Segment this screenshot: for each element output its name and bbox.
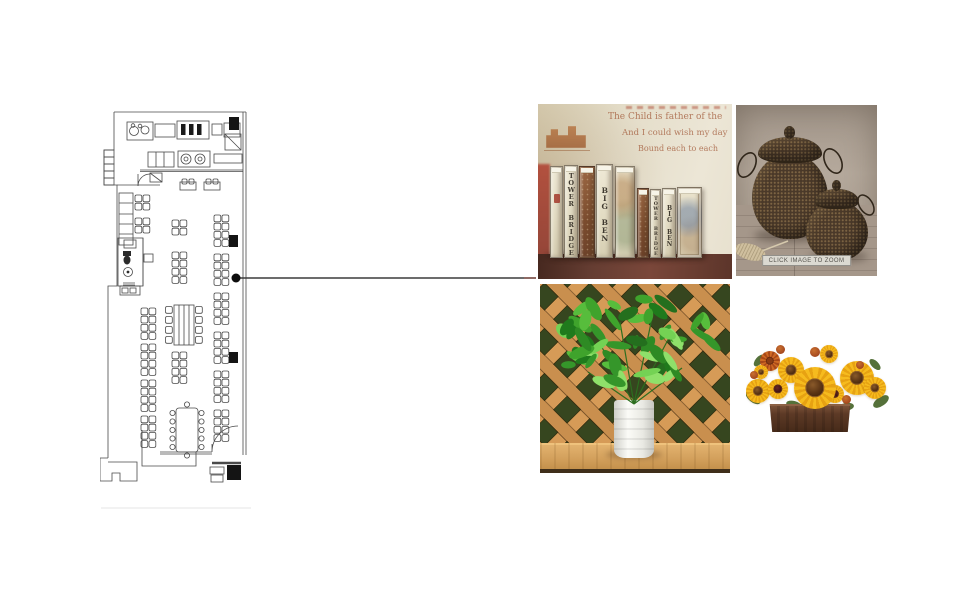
sunflower-head [864, 377, 886, 399]
book-spine-label: BIG BEN [601, 186, 609, 242]
zoom-caption[interactable]: CLICK IMAGE TO ZOOM [762, 255, 852, 266]
wall-fineprint [626, 106, 726, 109]
dining-tables [141, 215, 229, 458]
baskets-photo[interactable]: CLICK IMAGE TO ZOOM [736, 105, 877, 276]
plant-photo[interactable] [540, 284, 730, 473]
large-basket-knob [784, 126, 795, 139]
book-box-big-ben: BIG BEN [596, 164, 613, 258]
book-box [550, 166, 563, 258]
book-spine-label: TOWER BRIDGE [568, 172, 575, 256]
floor-plan-image[interactable] [100, 100, 252, 512]
castle-underline [544, 150, 590, 151]
sunflowers-photo[interactable] [746, 341, 890, 435]
booths-and-restroom [118, 193, 153, 295]
sunflower-head [746, 379, 770, 403]
design-board: The Child is father of the And I could w… [0, 0, 960, 600]
book-spine-label: BIG BEN [666, 205, 672, 247]
accent-bloom [842, 395, 851, 404]
kitchen-equipment [104, 121, 242, 190]
accent-bloom [810, 347, 820, 357]
accent-bloom [750, 371, 758, 379]
book-spine-label: TOWER BRIDGE [653, 196, 658, 256]
large-basket-lid [758, 137, 822, 163]
book-box-big-ben-small: BIG BEN [662, 188, 676, 258]
red-object [538, 164, 550, 260]
small-basket-body [806, 201, 868, 261]
small-basket-lid [815, 189, 859, 209]
sunflower-head [768, 379, 788, 399]
book-box [615, 166, 635, 258]
sunflower-head-large [794, 367, 836, 409]
books-photo[interactable]: The Child is father of the And I could w… [538, 104, 732, 279]
wall-text-line: Bound each to each [638, 144, 718, 153]
sunflower-head [820, 345, 838, 363]
accent-bloom [856, 361, 864, 369]
accent-bloom [776, 345, 785, 354]
book-box-tower-bridge: TOWER BRIDGE [564, 165, 578, 258]
book-box-tower-bridge-small: TOWER BRIDGE [650, 189, 661, 258]
book-box [637, 188, 649, 258]
wall-text-line: And I could wish my day [622, 128, 727, 138]
plant-foliage [540, 284, 730, 473]
book-box [677, 187, 702, 258]
wall-text-line: The Child is father of the [608, 112, 722, 122]
small-basket-knob [832, 180, 841, 191]
book-box [579, 166, 595, 258]
